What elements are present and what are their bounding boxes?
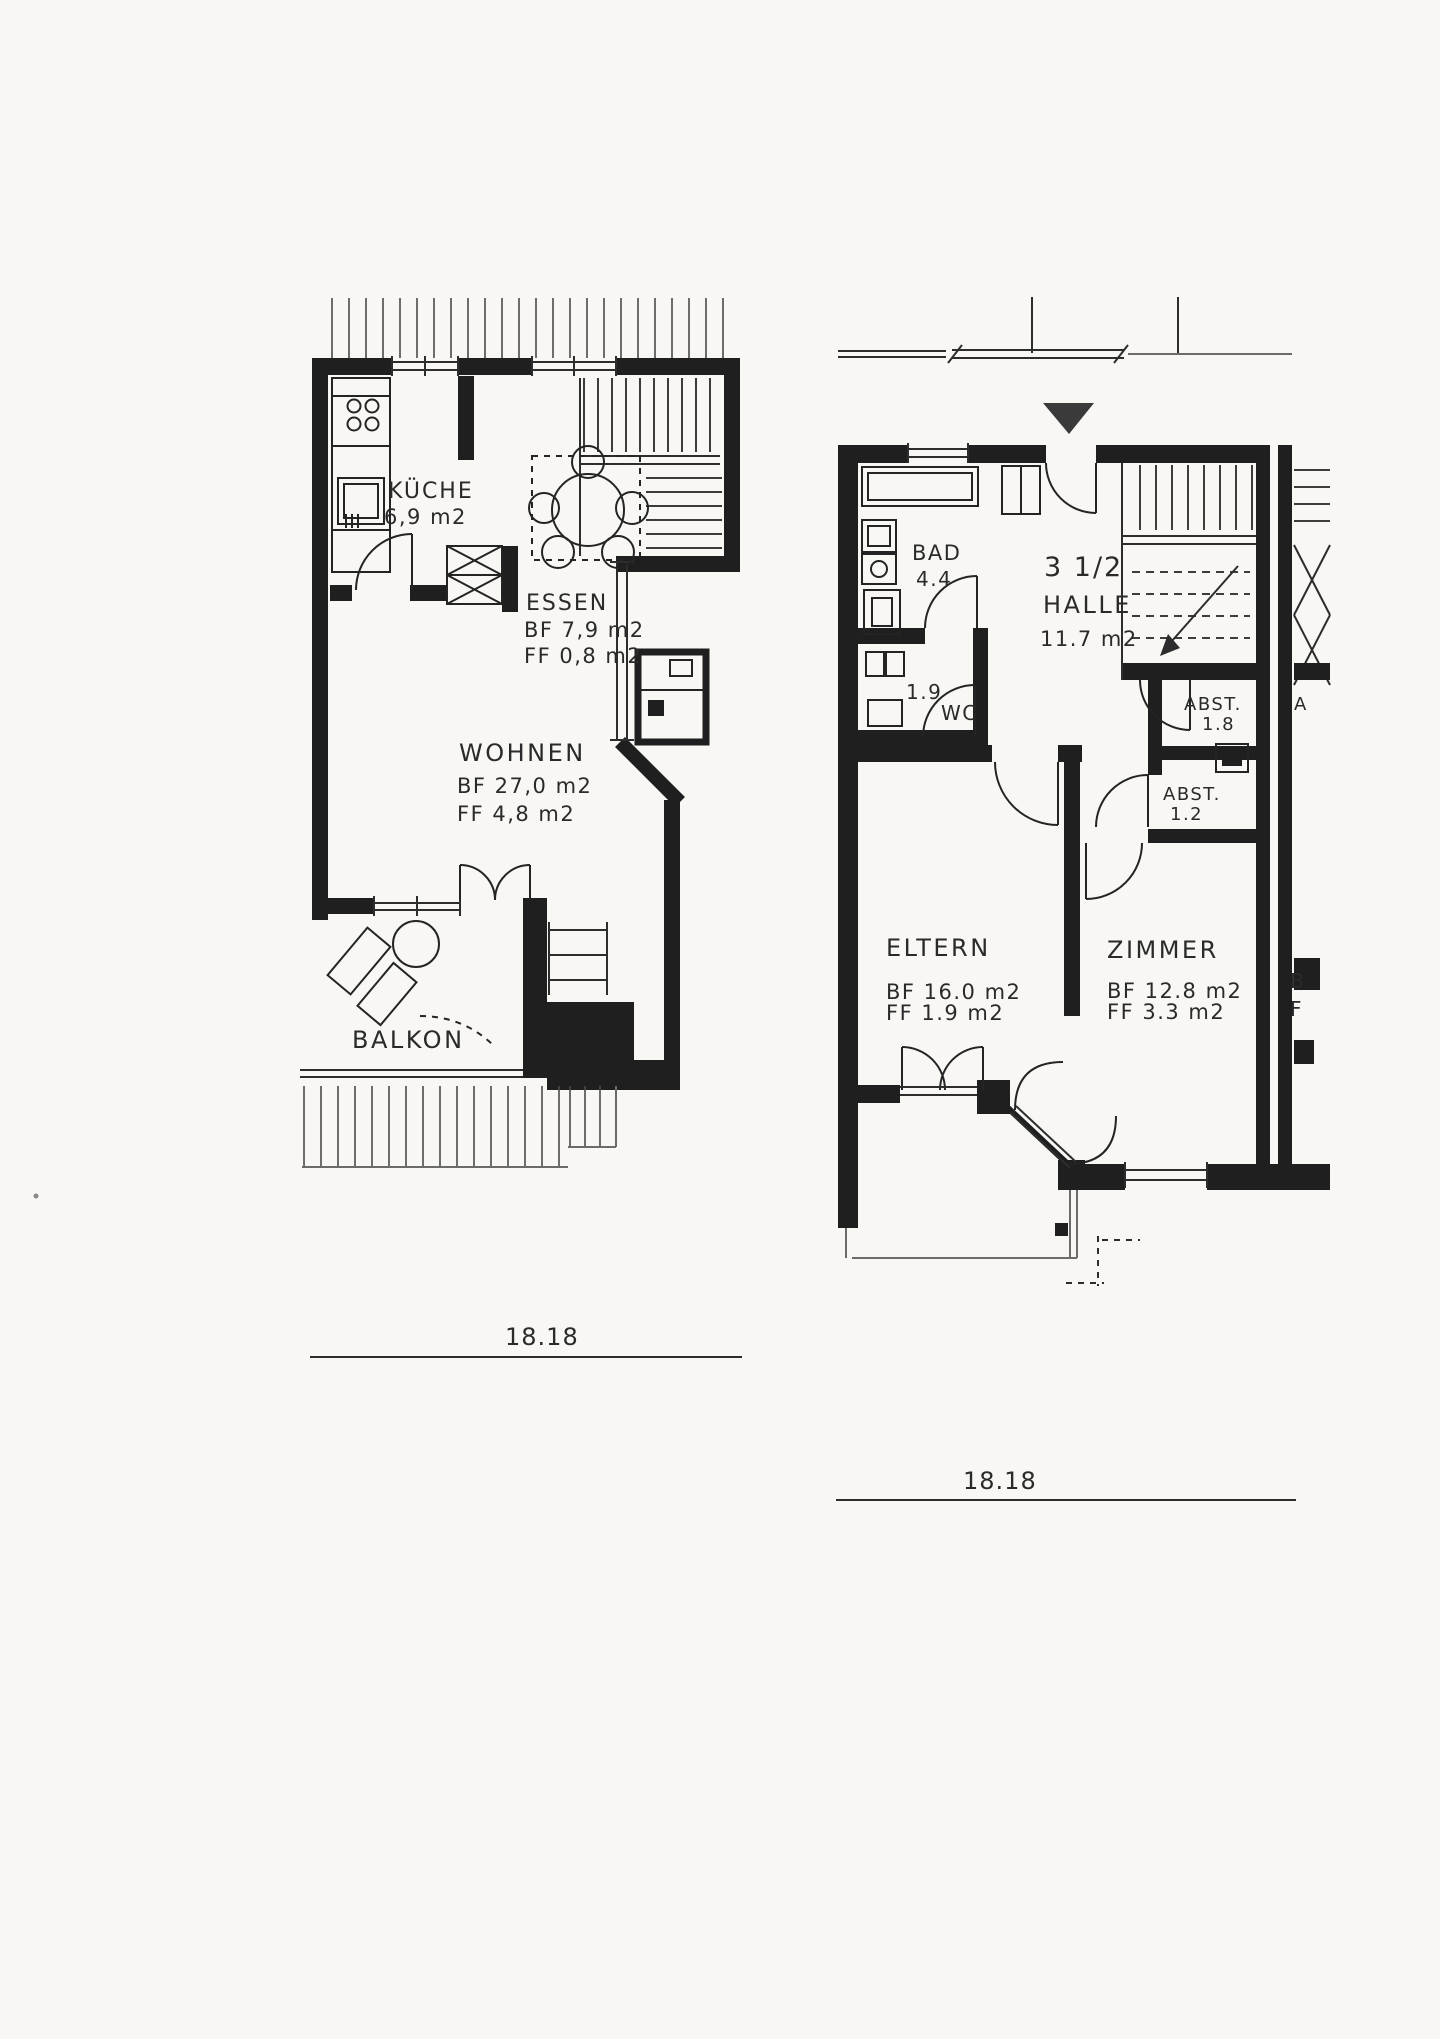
shaft-x-icon: [447, 546, 502, 604]
window: [374, 896, 460, 916]
terrace-outline: [846, 1190, 1077, 1258]
roof-hatch-bottom: [304, 1086, 559, 1166]
wc-fixtures: [866, 652, 904, 726]
neighbor-label-fragment: F: [1290, 997, 1303, 1021]
room-area-kueche: 6,9 m2: [384, 505, 467, 529]
door-arc: [1046, 463, 1096, 513]
sink-icon: [338, 478, 384, 528]
roof-hatch-bottom-step: [570, 1086, 600, 1146]
room-area-zimmer-ff: FF 3.3 m2: [1107, 1000, 1225, 1024]
room-area-bad: 4.4: [916, 567, 952, 591]
french-door-arcs: [460, 865, 530, 900]
room-area-wohnen-ff: FF 4,8 m2: [457, 802, 575, 826]
lounge-chair-icon: [328, 928, 417, 1025]
toilet-icon: [862, 520, 900, 634]
roof-hatch-border: [302, 1086, 616, 1167]
room-area-wohnen-bf: BF 27,0 m2: [457, 774, 592, 798]
stove-icon: [348, 400, 379, 431]
room-label-kueche: KÜCHE: [388, 478, 474, 504]
stairs-icon: [580, 378, 722, 556]
stairs-icon: [1122, 463, 1256, 680]
room-area-abst1: 1.8: [1202, 714, 1235, 735]
room-area-eltern-ff: FF 1.9 m2: [886, 1001, 1004, 1025]
window: [392, 356, 458, 376]
room-label-bad: BAD: [912, 541, 961, 565]
entrance-arrow-icon: [1043, 403, 1094, 434]
entry-closet: [1002, 466, 1040, 514]
room-label-essen: ESSEN: [526, 591, 608, 616]
window: [908, 443, 968, 463]
room-area-wc: 1.9: [906, 680, 942, 704]
right-floor-plan: A B F BAD 4.4 3 1/2 HALLE 11.7 m2 1.9 WC…: [836, 297, 1330, 1500]
window: [532, 356, 616, 376]
dimension-label: 18.18: [505, 1323, 579, 1351]
left-plan-walls: [312, 358, 740, 1090]
balcony-railing: [300, 1070, 523, 1077]
door-arc: [1140, 680, 1190, 730]
room-area-abst2: 1.2: [1170, 804, 1203, 825]
door-arc: [1015, 1062, 1116, 1164]
room-label-wohnen: WOHNEN: [459, 739, 586, 767]
neighbor-label-fragment: B: [1290, 969, 1305, 993]
room-label-wc: WC: [941, 701, 978, 725]
door-arc: [1086, 843, 1142, 899]
scanned-floorplan-page: KÜCHE 6,9 m2 ESSEN BF 7,9 m2 FF 0,8 m2 W…: [0, 0, 1440, 2039]
room-area-essen-ff: FF 0,8 m2: [524, 644, 642, 668]
window: [1125, 1162, 1207, 1188]
door-arc: [356, 534, 412, 590]
washbasin-icon: [862, 467, 978, 506]
room-area-essen-bf: BF 7,9 m2: [524, 618, 645, 642]
unit-size-label: 3 1/2: [1044, 552, 1123, 583]
room-label-abst1: ABST.: [1184, 694, 1242, 715]
door-arc: [995, 762, 1058, 825]
floorplan-drawing: KÜCHE 6,9 m2 ESSEN BF 7,9 m2 FF 0,8 m2 W…: [0, 0, 1440, 2039]
room-label-abst2: ABST.: [1163, 784, 1221, 805]
roof-hatch-top: [332, 298, 723, 358]
room-label-zimmer: ZIMMER: [1107, 936, 1219, 964]
fireplace-icon: [638, 652, 706, 742]
neighbor-label-fragment: A: [1294, 694, 1308, 715]
scan-speck: [34, 1194, 39, 1199]
balcony-table-icon: [393, 921, 439, 967]
dimension-label: 18.18: [963, 1467, 1037, 1495]
room-area-halle: 11.7 m2: [1040, 627, 1138, 651]
terrace-post: [1055, 1223, 1068, 1236]
top-dimension-lines: [838, 297, 1292, 363]
room-label-balkon: BALKON: [352, 1026, 465, 1054]
door-arc: [1096, 775, 1148, 827]
room-label-eltern: ELTERN: [886, 934, 991, 962]
window: [549, 922, 607, 995]
french-door-arcs: [900, 1047, 983, 1095]
left-floor-plan: KÜCHE 6,9 m2 ESSEN BF 7,9 m2 FF 0,8 m2 W…: [300, 298, 742, 1357]
room-label-halle: HALLE: [1043, 591, 1132, 619]
